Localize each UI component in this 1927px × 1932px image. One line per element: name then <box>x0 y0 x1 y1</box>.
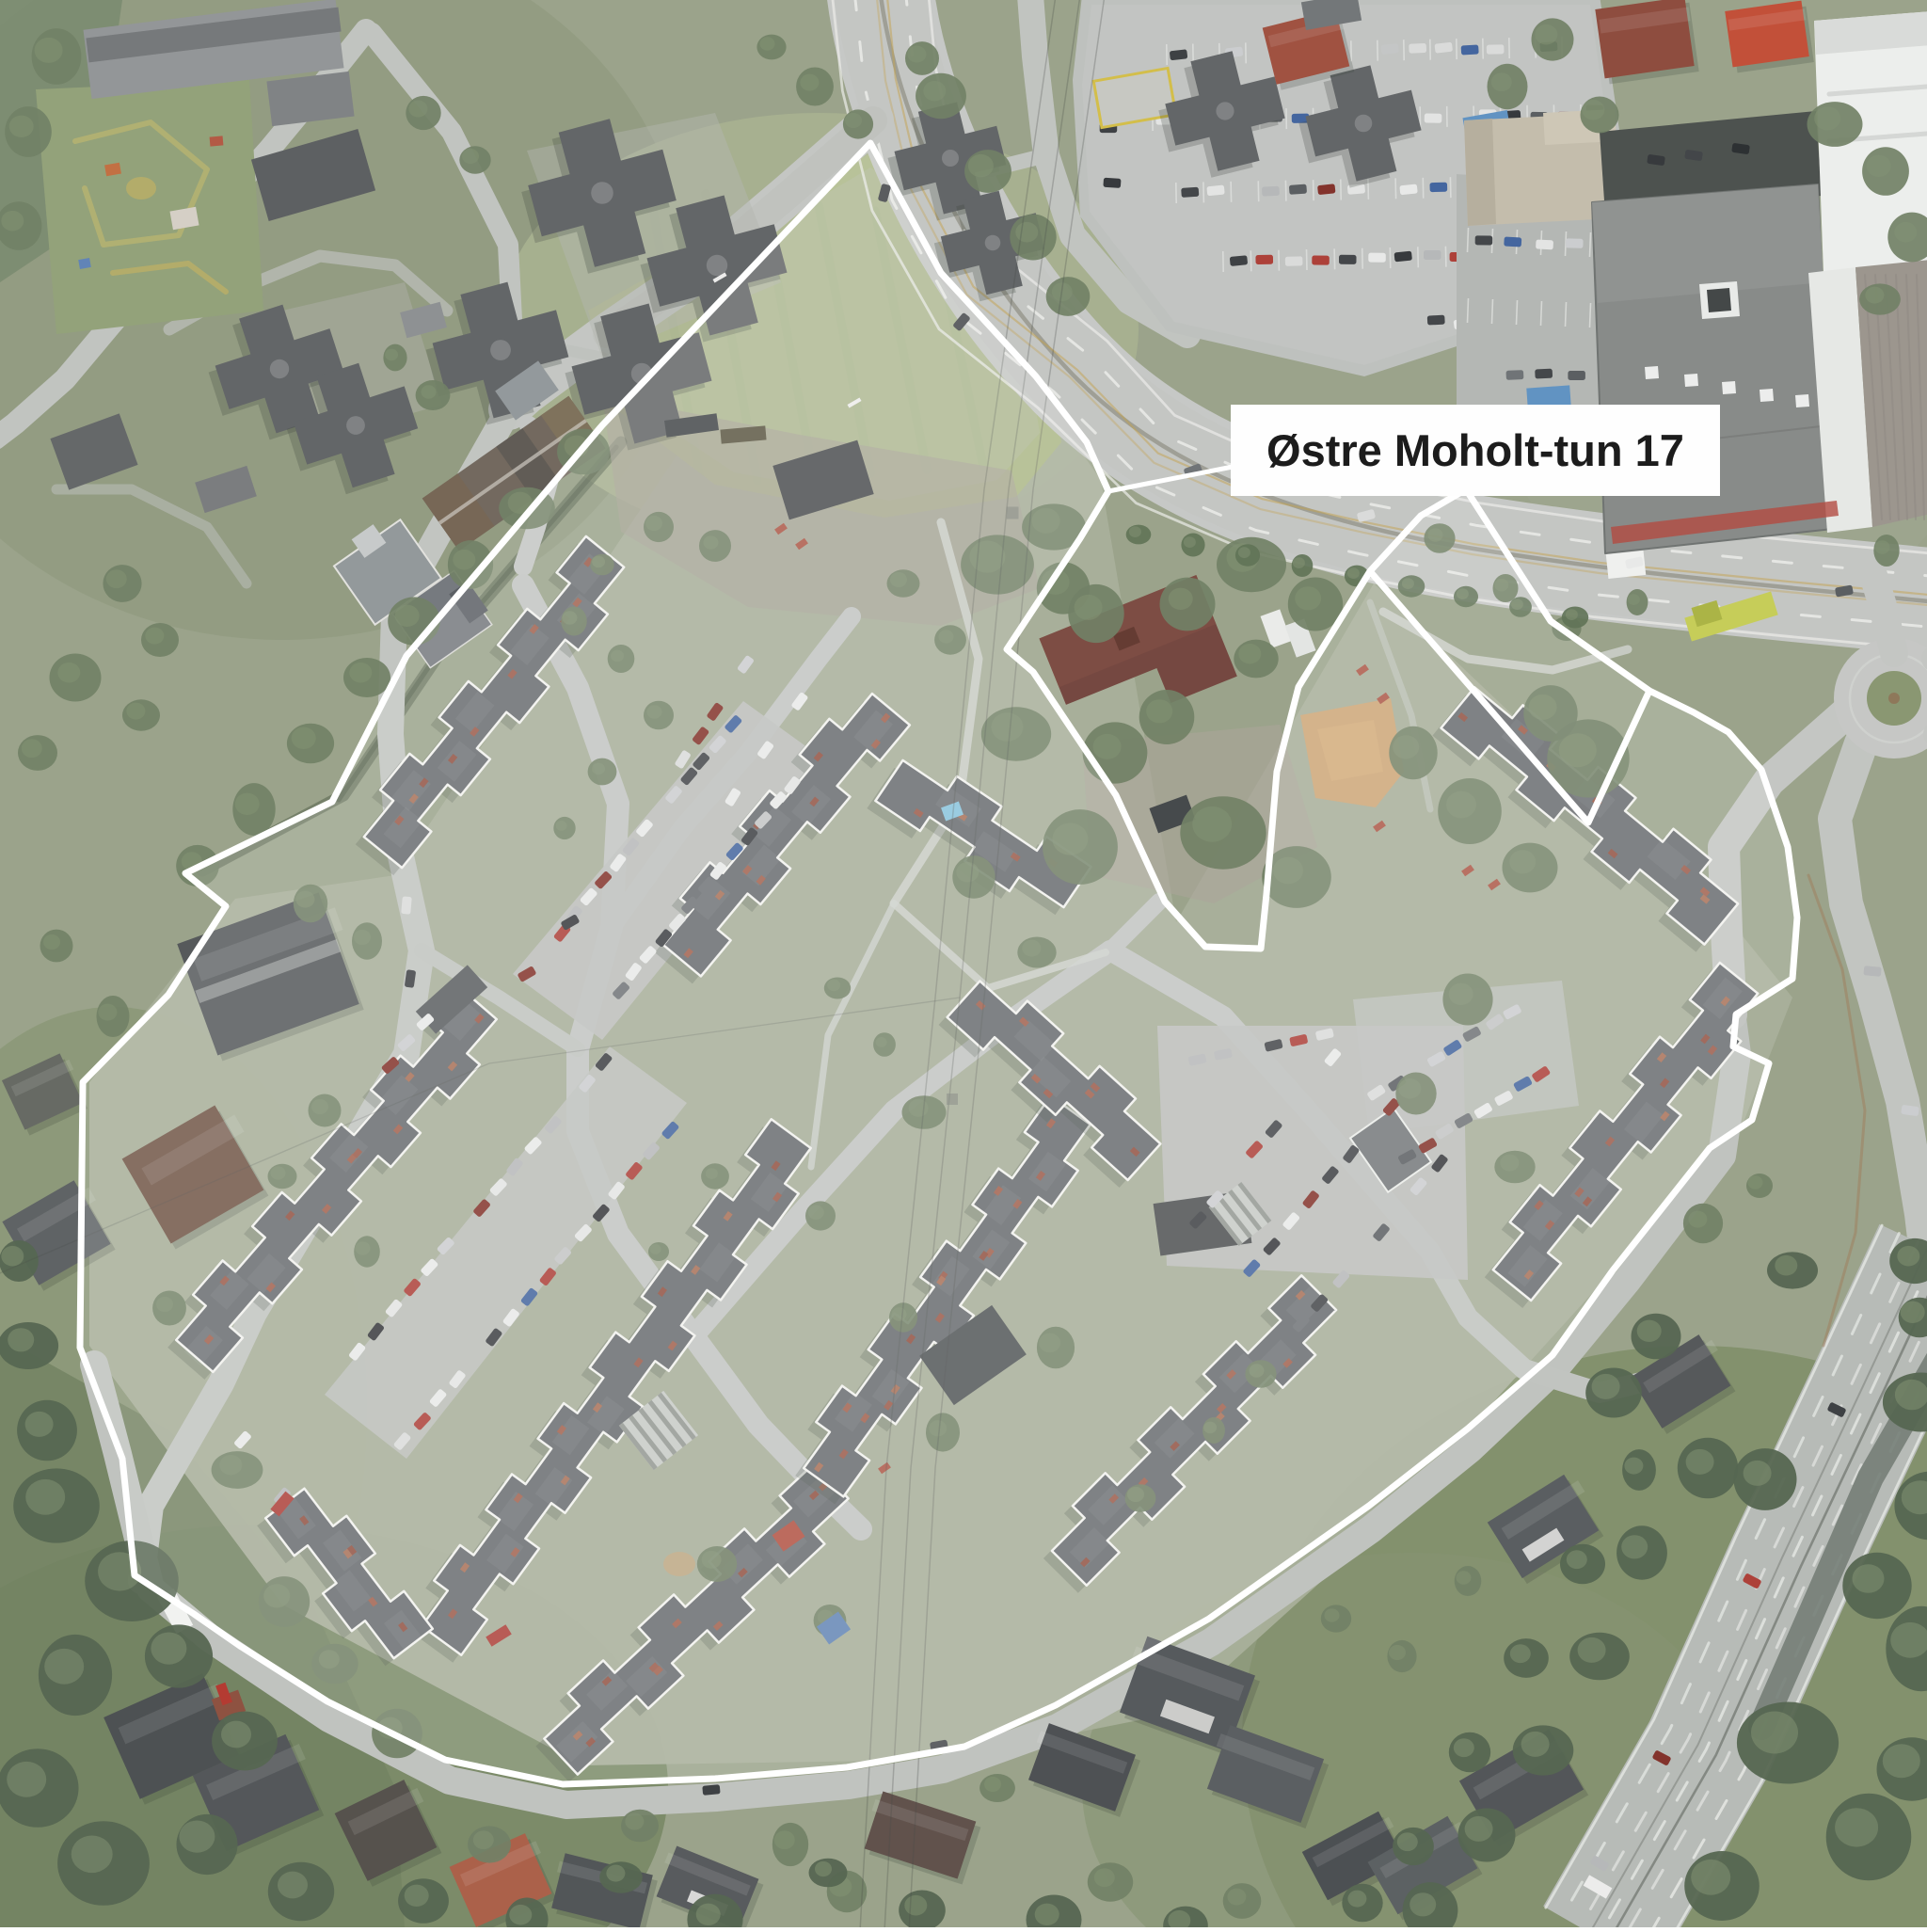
svg-text:Østre Moholt-tun 17: Østre Moholt-tun 17 <box>1266 425 1684 475</box>
